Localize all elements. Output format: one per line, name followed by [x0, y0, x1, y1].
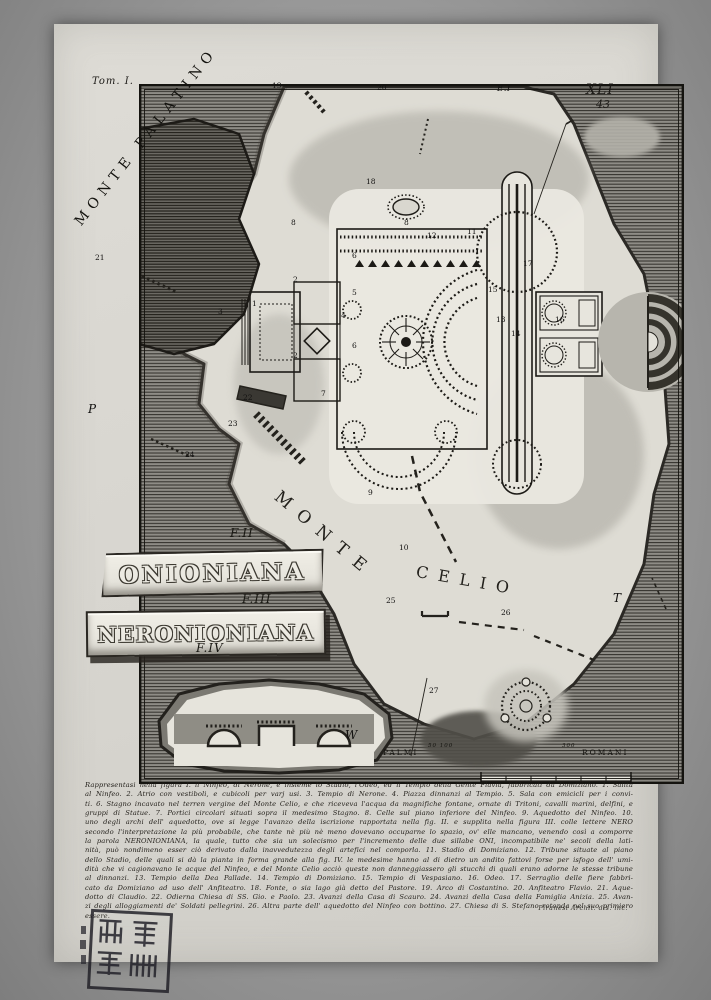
plan-marker: 18: [366, 177, 376, 186]
scale-right-label: ROMANI: [582, 748, 628, 757]
caption-line: al Ninfeo. 2. Atrio con vestiboli, e cub…: [85, 790, 633, 799]
caption-line: cato da Domiziano ad uso dell' Anfiteatr…: [85, 884, 633, 893]
plan-marker: 16: [555, 315, 565, 324]
seal-glyphs: [90, 912, 163, 984]
caption-line: ti. 6. Stagno incavato nel terren vergin…: [85, 800, 633, 809]
scale-left-label: PALMI: [383, 748, 418, 757]
plan-marker: 8: [404, 218, 409, 227]
fragment-f2-label: F.II: [230, 526, 254, 540]
scale-start-numbers: 50 100: [428, 743, 453, 749]
plan-marker: 1: [252, 299, 257, 308]
plan-marker: 13: [496, 315, 506, 324]
plan-marker: 10: [399, 543, 409, 552]
caption-line: al dinnanzi. 13. Tempio della Dea Pallad…: [85, 874, 633, 883]
plan-marker: 26: [501, 608, 511, 617]
plan-marker: 5: [352, 288, 357, 297]
plan-marker: 15: [488, 285, 498, 294]
plan-marker: 22: [243, 393, 253, 402]
plan-marker: 3: [218, 307, 223, 316]
plan-marker: 2: [293, 275, 298, 284]
seal-side-marks: [79, 924, 88, 972]
plan-marker: 20: [377, 83, 387, 92]
tome-label: Tom. I.: [92, 76, 134, 87]
plan-marker: 4: [341, 311, 346, 320]
page-number: 43: [596, 98, 610, 111]
caption-legend: Rappresentasi nella figura I. il Ninfeo,…: [85, 781, 633, 921]
fragment-f3-label: F.III: [242, 592, 272, 606]
plan-marker: 6: [352, 251, 357, 260]
caption-line: gruppi di Statue. 7. Portici circolari s…: [85, 809, 633, 818]
caption-line: nità, può nondimeno esser ciò derivato d…: [85, 846, 633, 855]
caption-line: dello Stadio, delle quali si dà la piant…: [85, 856, 633, 865]
plan-marker: 8: [291, 218, 296, 227]
plan-marker: 9: [368, 488, 373, 497]
scale-end-number: 300: [562, 743, 576, 749]
fragment-f4-drawing: [159, 680, 392, 773]
caption-line: Rappresentasi nella figura I. il Ninfeo,…: [85, 781, 633, 790]
plan-marker: 11: [467, 227, 477, 236]
plan-marker: 17: [523, 259, 533, 268]
plan-marker: 12: [427, 231, 437, 240]
plan-marker: 25: [386, 596, 396, 605]
caption-line: dità che vi cagionavano le acque del Nin…: [85, 865, 633, 874]
plan-marker: 21: [95, 253, 105, 262]
plate-number: XLI: [586, 82, 614, 98]
plan-marker: 24: [185, 450, 195, 459]
fragment-f4-label: F.IV: [196, 641, 224, 655]
plan-marker: 19: [272, 81, 282, 90]
plate-drawing: [139, 84, 684, 784]
plan-marker: T: [613, 591, 621, 605]
artist-signature: Piranesi Archit. dis. inc.: [400, 905, 628, 912]
plan-marker: 7: [321, 389, 326, 398]
plan-marker: E.I: [497, 84, 511, 94]
fragment-f2-inscription: ONIONIANA: [119, 558, 307, 589]
plan-marker: 27: [429, 686, 439, 695]
plan-marker: W: [345, 728, 357, 742]
engraved-plate: [139, 84, 684, 784]
caption-line: la parola NERONIONIANA, la quale, tutto …: [85, 837, 633, 846]
caption-line: dotto di Claudio. 22. Odierna Chiesa di …: [85, 893, 633, 902]
plan-marker: 6: [352, 341, 357, 350]
plan-marker: 14: [511, 329, 521, 338]
plan-marker: P: [88, 402, 96, 416]
plan-marker: 23: [228, 419, 238, 428]
plan-marker: 2: [293, 351, 298, 360]
caption-line: secondo l'interpretazione la più probabi…: [85, 828, 633, 837]
terrain-monte-palatino: [139, 119, 259, 354]
caption-line: uno degli archi dell' aquedotto, ove si …: [85, 818, 633, 827]
fragment-f2-slab: ONIONIANA: [101, 549, 325, 598]
collector-seal: [87, 909, 173, 993]
